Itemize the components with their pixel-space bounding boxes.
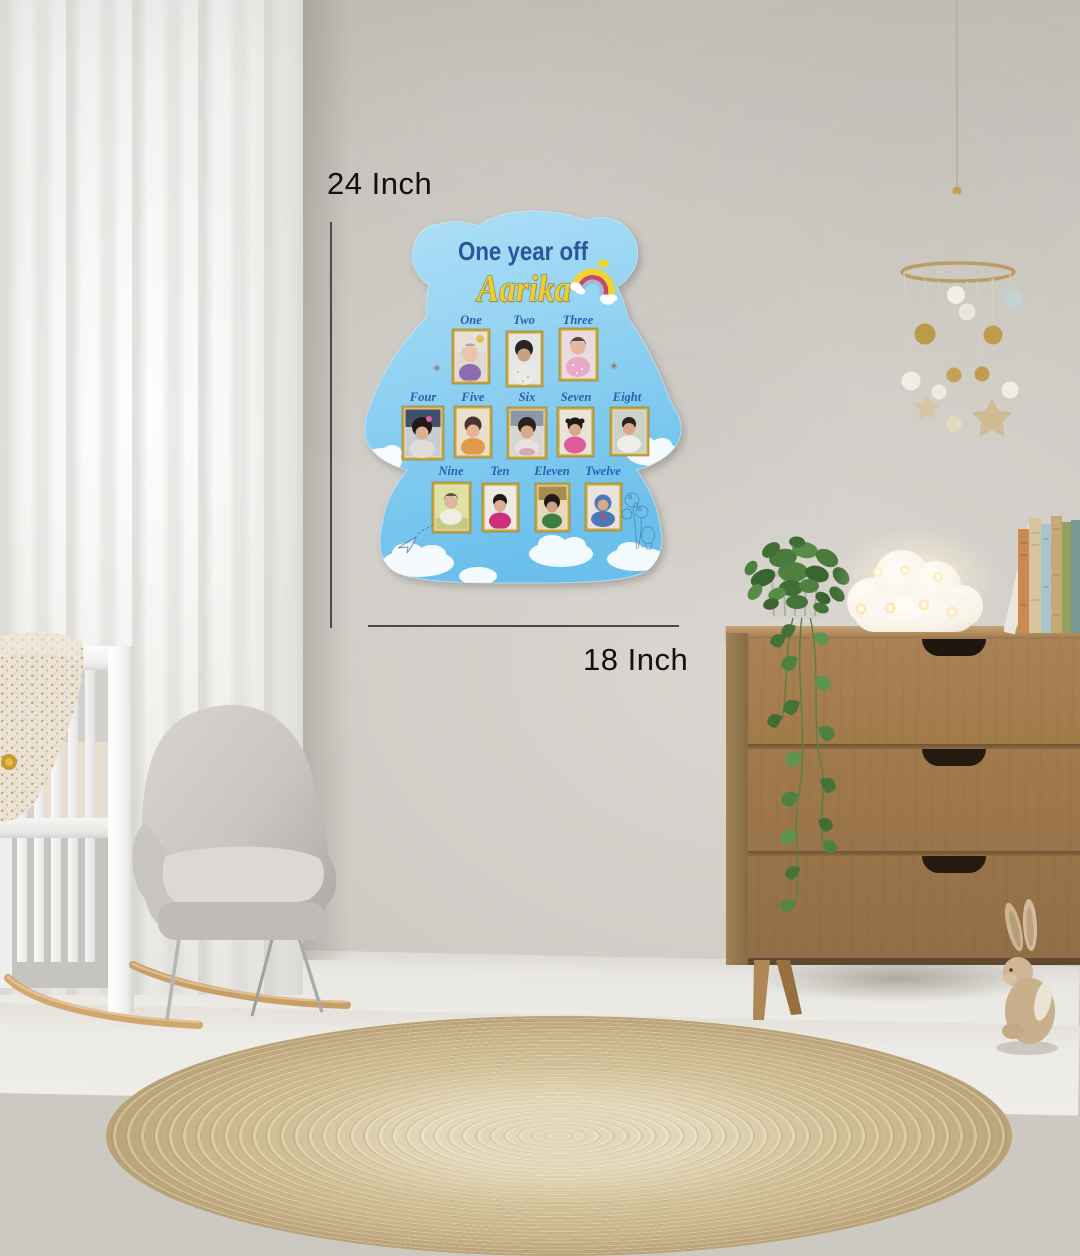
svg-text:Aarika: Aarika — [475, 268, 571, 310]
svg-text:Two: Two — [513, 313, 535, 327]
svg-text:Five: Five — [461, 390, 485, 404]
svg-text:Eight: Eight — [612, 390, 642, 404]
svg-text:Twelve: Twelve — [585, 464, 621, 478]
svg-text:Six: Six — [519, 390, 536, 404]
svg-text:Seven: Seven — [561, 390, 592, 404]
svg-text:Eleven: Eleven — [533, 464, 569, 478]
svg-text:Four: Four — [409, 390, 437, 404]
svg-text:Nine: Nine — [438, 464, 464, 478]
svg-text:Three: Three — [563, 313, 594, 327]
svg-text:One: One — [460, 313, 482, 327]
svg-text:One year off: One year off — [458, 236, 588, 266]
svg-text:Ten: Ten — [491, 464, 510, 478]
